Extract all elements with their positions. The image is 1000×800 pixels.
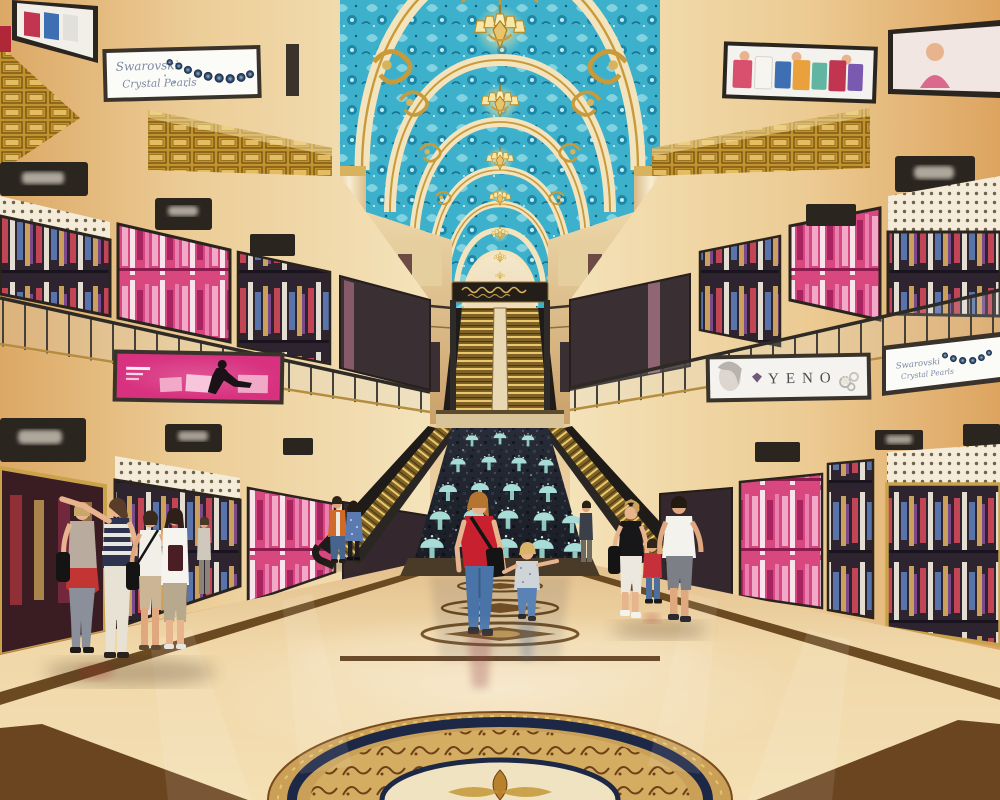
storefront-window xyxy=(740,474,822,608)
brand-text: YENO xyxy=(768,370,838,387)
handbag xyxy=(126,562,140,590)
banner-kids-collage xyxy=(722,41,878,103)
collage-photo xyxy=(774,61,791,89)
reflection-left-group xyxy=(45,658,215,686)
collage-photo xyxy=(24,11,40,37)
banner-collage-far-right xyxy=(888,20,1000,98)
escalator-upper xyxy=(443,300,557,418)
handbag xyxy=(608,546,621,574)
signboard xyxy=(250,234,295,256)
collage-photo xyxy=(754,56,772,89)
storefront-window xyxy=(238,252,330,364)
headline-bar xyxy=(126,367,150,370)
signboard xyxy=(755,442,800,462)
banner-edge-panel xyxy=(286,44,299,96)
signboard xyxy=(806,204,856,226)
person-distant-shopper-left xyxy=(197,517,211,595)
banner-pink-fashion xyxy=(113,350,285,405)
collage-photo xyxy=(828,60,846,92)
collage-photo xyxy=(732,60,752,89)
text-bar xyxy=(126,373,143,375)
banner-swarovski-left: Swarovski Crystal Pearls xyxy=(102,45,261,102)
mall-atrium-scene: Swarovski Crystal Pearls YENO xyxy=(0,0,1000,800)
folder xyxy=(168,545,183,571)
collage-photo xyxy=(63,14,78,42)
text-bar xyxy=(126,378,139,380)
edge-banner xyxy=(0,26,11,52)
storefront-window xyxy=(700,236,780,346)
storefront-window xyxy=(828,460,873,618)
escalator-sign xyxy=(452,282,548,302)
floor-glow xyxy=(300,624,700,696)
storefront-window-gold xyxy=(887,484,1000,645)
product-text: Crystal Pearls xyxy=(122,77,197,91)
handbag xyxy=(56,552,70,582)
collage-photo xyxy=(792,60,810,91)
scene-canvas: Swarovski Crystal Pearls YENO xyxy=(0,0,1000,800)
collage-photo xyxy=(811,62,827,90)
pink-box xyxy=(160,377,183,392)
collage-photo xyxy=(44,12,59,40)
signboard xyxy=(283,438,313,455)
banner-yeno: YENO xyxy=(706,353,872,403)
reflection-pair xyxy=(323,561,367,571)
collage-photo xyxy=(847,64,863,92)
signboard xyxy=(963,424,1000,446)
